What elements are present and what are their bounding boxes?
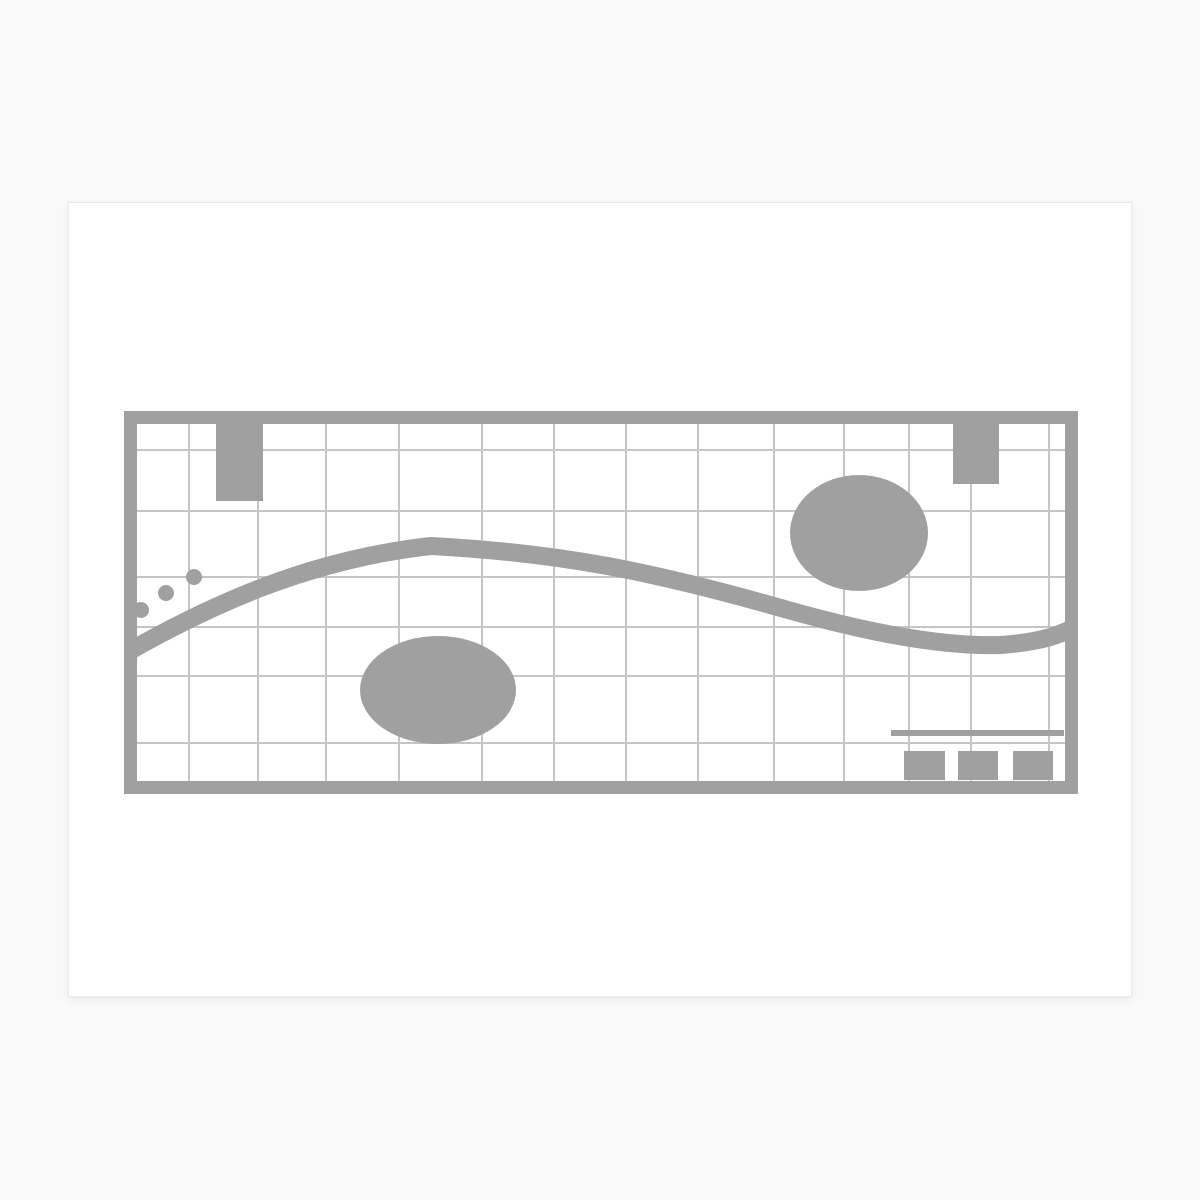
card (68, 202, 1132, 997)
abstract-grid-artwork (124, 411, 1078, 794)
top-tab-rect (953, 417, 999, 484)
ellipse-blob (790, 475, 928, 591)
ellipse-blob (360, 636, 516, 744)
page-background: { "canvas": { "width": 1200, "height": 1… (0, 0, 1200, 1200)
dot (186, 569, 202, 585)
bottom-bar (891, 730, 1064, 736)
bottom-square (1013, 751, 1053, 780)
top-tab-rect (216, 417, 263, 501)
bottom-square (958, 751, 998, 780)
dot (158, 585, 174, 601)
bottom-square (904, 751, 945, 780)
wave-curve (124, 546, 1078, 663)
